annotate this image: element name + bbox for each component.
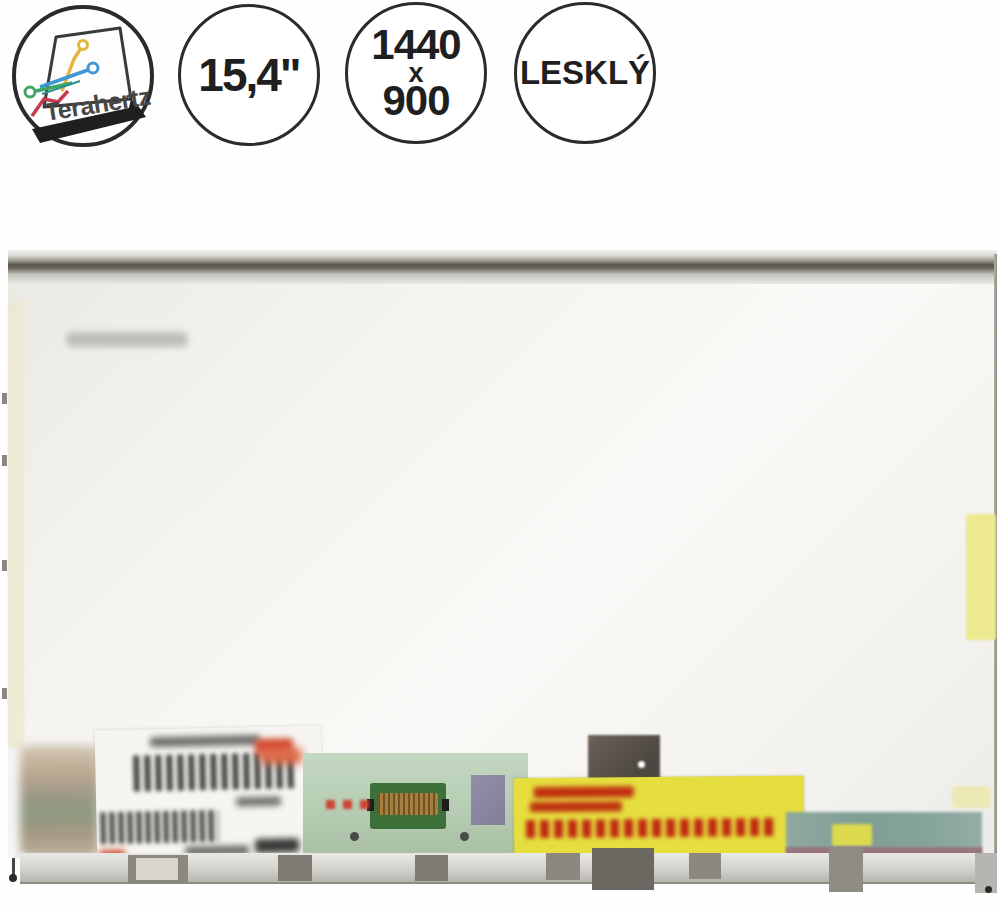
mounting-tab bbox=[546, 853, 580, 880]
mounting-tab bbox=[415, 855, 448, 881]
corner-bracket bbox=[975, 853, 997, 893]
blurred-red-text bbox=[534, 786, 634, 798]
blurred-text-line bbox=[150, 735, 260, 747]
screw-hole bbox=[350, 832, 359, 841]
controller-chip bbox=[471, 775, 505, 825]
resolution-width: 1440 bbox=[371, 28, 460, 62]
red-stamp bbox=[260, 748, 302, 764]
lvds-connector bbox=[370, 783, 446, 829]
right-yellow-tape bbox=[966, 514, 996, 640]
screw-notch bbox=[2, 393, 7, 404]
resolution-height: 900 bbox=[371, 84, 460, 118]
blurred-model-marking bbox=[66, 332, 188, 347]
product-photo: Terahertz 15,4" 1440 x 900 LESKLÝ bbox=[0, 0, 1000, 908]
mounting-tab bbox=[278, 855, 312, 881]
barcode bbox=[100, 810, 219, 844]
warning-label bbox=[514, 776, 805, 859]
pcb-red-mark bbox=[360, 800, 369, 809]
screw-notch bbox=[2, 560, 7, 571]
pcb-red-mark bbox=[343, 800, 352, 809]
screw-hole bbox=[460, 832, 469, 841]
left-tape-strip bbox=[8, 302, 24, 748]
blurred-red-text bbox=[530, 801, 622, 812]
bottom-metal-rail bbox=[20, 853, 990, 884]
blurred-dark-mark bbox=[255, 838, 299, 853]
mounting-tab-inner bbox=[136, 858, 178, 880]
top-metal-rail bbox=[8, 250, 997, 284]
terahertz-logo-icon: Terahertz bbox=[10, 3, 156, 149]
screen-size-label: 15,4" bbox=[198, 48, 299, 102]
screw-notch bbox=[2, 455, 7, 466]
brand-logo-badge: Terahertz bbox=[10, 3, 156, 149]
finish-type-label: LESKLÝ bbox=[520, 54, 650, 92]
resolution-stack: 1440 x 900 bbox=[371, 28, 460, 119]
bracket-screw-dot bbox=[985, 886, 992, 893]
barcode-sticker bbox=[95, 726, 324, 867]
connector-clip bbox=[442, 799, 449, 811]
connector-pins bbox=[378, 793, 438, 815]
finish-type-badge: LESKLÝ bbox=[514, 2, 656, 144]
pcb-red-mark bbox=[326, 800, 335, 809]
screen-size-badge: 15,4" bbox=[178, 4, 320, 146]
flex-cable bbox=[20, 745, 98, 857]
mounting-tab bbox=[829, 848, 863, 892]
lcd-panel bbox=[8, 250, 997, 884]
mounting-tab bbox=[592, 848, 654, 890]
highlight-dot bbox=[638, 761, 645, 768]
yellow-tape-piece bbox=[952, 786, 990, 808]
driver-pcb bbox=[303, 753, 528, 853]
small-yellow-label bbox=[832, 824, 872, 846]
blurred-text-line bbox=[236, 796, 281, 806]
mounting-tab bbox=[689, 853, 721, 879]
screw-notch bbox=[2, 688, 7, 699]
blurred-serial-characters bbox=[526, 818, 778, 838]
mounting-tab bbox=[128, 855, 188, 883]
resolution-badge: 1440 x 900 bbox=[345, 2, 487, 144]
